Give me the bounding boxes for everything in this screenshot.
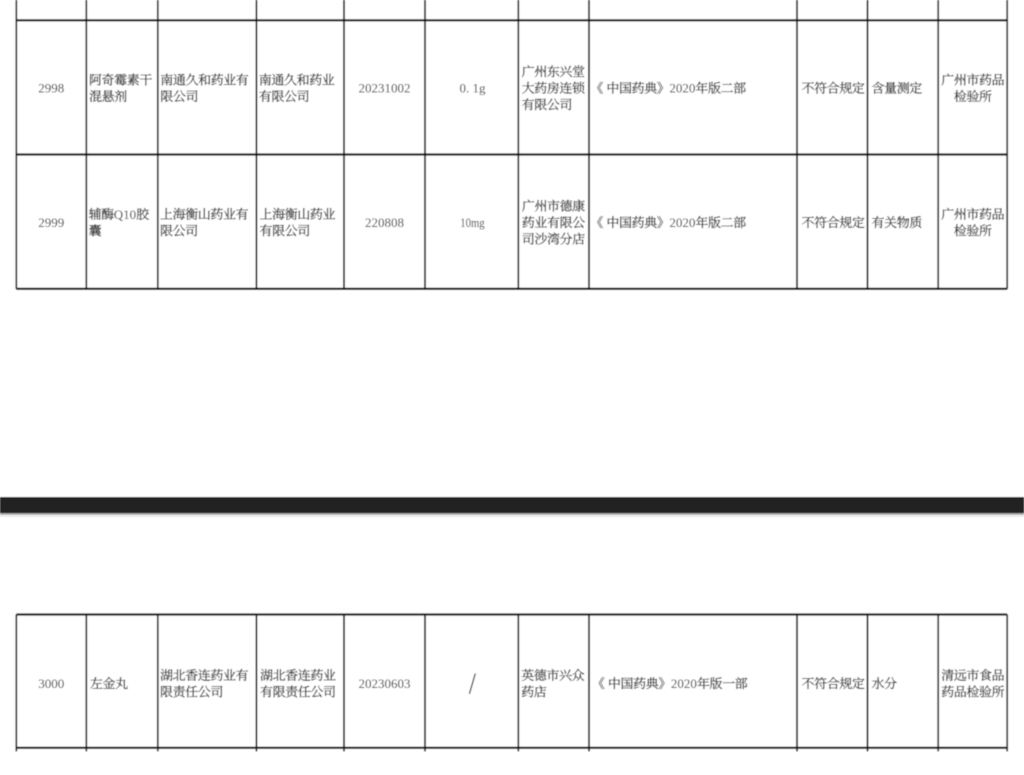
svg-text:3000: 3000 [38, 676, 64, 691]
svg-text:220808: 220808 [365, 215, 404, 230]
svg-text:10mg: 10mg [460, 215, 485, 230]
svg-text:2020: 2020 [669, 81, 695, 96]
svg-text:2020: 2020 [671, 676, 697, 691]
svg-text:2999: 2999 [38, 215, 64, 230]
svg-text:2998: 2998 [38, 81, 64, 96]
svg-text:2020: 2020 [669, 215, 695, 230]
svg-text:20231002: 20231002 [359, 81, 411, 96]
svg-text:20230603: 20230603 [359, 676, 411, 691]
svg-text:0. 1g: 0. 1g [460, 81, 487, 96]
svg-text:Q10: Q10 [114, 207, 136, 222]
